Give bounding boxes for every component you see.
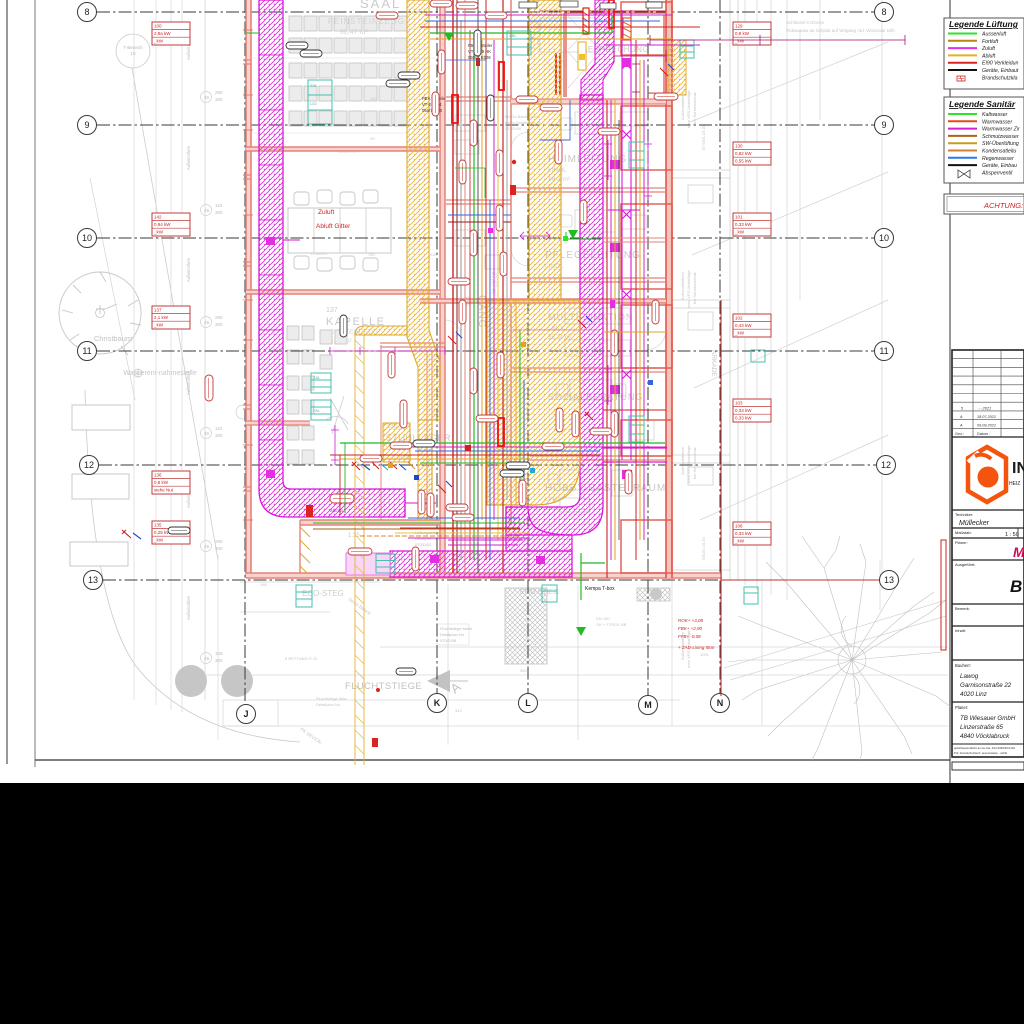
svg-text:siehe Nut: siehe Nut: [154, 488, 174, 493]
svg-text:Geräte, Einbau: Geräte, Einbau: [982, 163, 1017, 169]
svg-text:_kW: _kW: [153, 323, 164, 328]
svg-text:Zuluft: Zuluft: [981, 46, 996, 52]
svg-text:8: 8: [881, 7, 886, 17]
svg-text:_kW: _kW: [734, 230, 745, 235]
svg-text:Bauherr:: Bauherr:: [955, 663, 971, 668]
svg-text:300: 300: [215, 658, 223, 663]
svg-text:Außenvitrikbore: Außenvitrikbore: [680, 446, 685, 475]
svg-text:Detailplan Nu: Detailplan Nu: [316, 702, 340, 707]
svg-text:0,33 kW: 0,33 kW: [735, 408, 752, 413]
svg-text:4840 Vöcklabruck: 4840 Vöcklabruck: [960, 733, 1010, 740]
svg-text:SW-Überlüftung: SW-Überlüftung: [982, 140, 1019, 147]
svg-text:Abluft Gitter: Abluft Gitter: [316, 223, 351, 230]
svg-text:13: 13: [884, 575, 894, 585]
svg-text:J: J: [243, 709, 248, 719]
svg-text:0,33 kW: 0,33 kW: [735, 222, 752, 227]
svg-text:106: 106: [735, 524, 743, 529]
svg-text:M: M: [1013, 544, 1024, 560]
svg-text:142: 142: [154, 215, 162, 220]
svg-text:09.09.2021: 09.09.2021: [977, 424, 996, 428]
svg-text:130: 130: [735, 144, 743, 149]
svg-text:2,8a kW: 2,8a kW: [154, 31, 171, 36]
svg-text:188: 188: [260, 582, 267, 587]
svg-text:11: 11: [879, 346, 888, 356]
svg-text:9: 9: [84, 120, 89, 130]
svg-text:HEIZ: HEIZ: [1009, 481, 1020, 487]
svg-text:Außenvitrikbore: Außenvitrikbore: [680, 271, 685, 300]
svg-text:Zuluft: Zuluft: [318, 209, 334, 216]
svg-text:0,8 kW: 0,8 kW: [735, 31, 750, 36]
svg-text:0,8 kW: 0,8 kW: [154, 480, 169, 485]
svg-text:Regenwasser: Regenwasser: [982, 156, 1014, 162]
svg-text:A: A: [959, 424, 963, 428]
svg-text:Außenrollore: Außenrollore: [186, 370, 191, 395]
svg-text:10: 10: [82, 233, 92, 243]
svg-text:5 RETTUNG-P. Di: 5 RETTUNG-P. Di: [285, 656, 317, 661]
svg-text:101: 101: [735, 215, 743, 220]
svg-text:26: 26: [204, 320, 210, 325]
svg-text:070/D/02: 070/D/02: [415, 542, 432, 547]
svg-text:Legende Lüftung: Legende Lüftung: [949, 19, 1019, 29]
svg-text:Geräte, Einbaut: Geräte, Einbaut: [982, 68, 1019, 74]
svg-text:EI90 Verkleidun: EI90 Verkleidun: [982, 61, 1019, 67]
svg-text:born XPS-Umhellage: born XPS-Umhellage: [686, 445, 691, 483]
svg-text:1 : 50: 1 : 50: [1005, 532, 1019, 538]
svg-text:SSUE-V3.20: SSUE-V3.20: [701, 537, 706, 560]
svg-text:Schmutzwasser: Schmutzwasser: [982, 134, 1019, 140]
svg-text:Außenrollore: Außenrollore: [186, 145, 191, 170]
svg-text:13: 13: [88, 575, 98, 585]
svg-text:100: 100: [154, 24, 162, 29]
svg-text:TB Wiesauer GmbH: TB Wiesauer GmbH: [960, 715, 1016, 722]
svg-text:Linzerstraße 65: Linzerstraße 65: [960, 724, 1004, 731]
svg-text:137: 137: [326, 307, 338, 314]
svg-text:26: 26: [204, 208, 210, 213]
svg-text:Aussenluft: Aussenluft: [981, 32, 1007, 38]
svg-text:Legende Sanitär: Legende Sanitär: [949, 99, 1016, 109]
svg-text:IN: IN: [1012, 460, 1024, 477]
svg-text:290: 290: [215, 315, 223, 320]
svg-text:SAAL: SAAL: [360, 0, 401, 11]
svg-text:FFB+ -0,08: FFB+ -0,08: [678, 634, 701, 639]
svg-text:Kempa T-box: Kempa T-box: [585, 586, 615, 592]
svg-text:T-Bereich: T-Bereich: [123, 45, 143, 50]
svg-text:137: 137: [154, 308, 162, 313]
svg-text:0,94 kW: 0,94 kW: [154, 222, 171, 227]
svg-text:075/D/00: 075/D/00: [505, 126, 522, 131]
svg-text:Christbaum: Christbaum: [94, 334, 132, 343]
svg-text:290: 290: [215, 539, 223, 544]
svg-text:_kW: _kW: [734, 539, 745, 544]
svg-text:300: 300: [215, 433, 223, 438]
svg-text:Techniker:: Techniker:: [955, 512, 973, 517]
svg-text:_kW: _kW: [153, 39, 164, 44]
svg-text:18.07.2021: 18.07.2021: [977, 415, 996, 419]
svg-text:Kaltwasser: Kaltwasser: [982, 112, 1008, 118]
svg-text:290: 290: [215, 90, 223, 95]
svg-text:Maßstab:: Maßstab:: [955, 530, 972, 535]
svg-text:AM/3M: AM/3M: [330, 508, 343, 513]
svg-text:103: 103: [735, 401, 743, 406]
svg-text:0,43 kW: 0,43 kW: [735, 323, 752, 328]
svg-text:300: 300: [215, 97, 223, 102]
svg-text:Schlüssel it Glocke: Schlüssel it Glocke: [786, 20, 825, 25]
svg-text:Fluchtstiege siehe: Fluchtstiege siehe: [440, 626, 473, 631]
svg-text:Garnisonstraße 22: Garnisonstraße 22: [960, 682, 1012, 689]
svg-text:Absperrventil: Absperrventil: [981, 170, 1013, 176]
svg-text:BESPRECHUNG: BESPRECHUNG: [582, 45, 649, 54]
svg-text:bei Sonnenschutz: bei Sonnenschutz: [692, 272, 697, 304]
svg-text:960: 960: [520, 668, 527, 673]
svg-text:OK + FTRCK UB: OK + FTRCK UB: [596, 622, 627, 627]
svg-text:12: 12: [84, 460, 94, 470]
svg-text:070/D/08: 070/D/08: [440, 638, 457, 643]
svg-text:_kW: _kW: [153, 538, 164, 543]
svg-text:N: N: [717, 698, 724, 708]
svg-text:geböftsausmäbcht an ws./wa. 4/: geböftsausmäbcht an ws./wa. 4/11/1953/49…: [954, 746, 1015, 750]
svg-text:2,1 kW: 2,1 kW: [154, 315, 169, 320]
svg-text:ETSSE-V3.20: ETSSE-V3.20: [701, 124, 706, 150]
svg-text:300: 300: [215, 546, 223, 551]
svg-text:300: 300: [215, 210, 223, 215]
svg-text:Gez.:: Gez.:: [955, 432, 964, 436]
svg-text:K: K: [434, 698, 441, 708]
svg-text:M: M: [644, 700, 652, 710]
svg-text:Ausgeführt:: Ausgeführt:: [955, 562, 975, 567]
svg-text:12: 12: [881, 460, 891, 470]
svg-text:26: 26: [204, 431, 210, 436]
svg-text:_kW: _kW: [734, 39, 745, 44]
svg-text:Brandschutzkla: Brandschutzkla: [982, 75, 1018, 81]
svg-text:0,33 kW: 0,33 kW: [735, 416, 752, 421]
svg-text:Lawog: Lawog: [960, 673, 979, 680]
svg-text:29: 29: [370, 136, 375, 141]
svg-text:27,87 m²: 27,87 m²: [490, 272, 496, 296]
svg-text:136: 136: [154, 473, 162, 478]
svg-text:Außenvitrikbore: Außenvitrikbore: [680, 91, 685, 120]
svg-text:ARKADE: ARKADE: [710, 350, 717, 377]
svg-text:0,33 kW: 0,33 kW: [735, 531, 752, 536]
svg-text:9: 9: [881, 120, 886, 130]
svg-text:Bemerk:: Bemerk:: [955, 606, 970, 611]
svg-text:98,47 m²: 98,47 m²: [340, 29, 368, 36]
svg-text:8: 8: [84, 7, 89, 17]
svg-text:26: 26: [204, 656, 210, 661]
svg-text:110: 110: [215, 203, 223, 208]
svg-text:FAL: FAL: [313, 408, 321, 413]
svg-text:ZAL: ZAL: [310, 83, 318, 88]
svg-text:26: 26: [204, 544, 210, 549]
svg-text:Pof: brandschutztech. ausums: Pof: brandschutztech. ausumstatue - acht…: [954, 751, 1008, 755]
svg-text:Warmwasser Zir: Warmwasser Zir: [982, 127, 1020, 133]
svg-text:Rükaustaw aa Schjukt auf Wögan: Rükaustaw aa Schjukt auf Wögang rüd. Wis…: [786, 28, 895, 33]
svg-text:1001: 1001: [700, 652, 710, 657]
svg-text:102: 102: [735, 316, 743, 321]
svg-text:129: 129: [735, 24, 743, 29]
svg-text:10: 10: [879, 233, 889, 243]
svg-text:Fortluft: Fortluft: [982, 39, 999, 45]
svg-text:Detailplan Nu: Detailplan Nu: [440, 632, 464, 637]
svg-text:Fluchtstiege deta: Fluchtstiege deta: [316, 696, 347, 701]
svg-text:Planer:: Planer:: [955, 705, 968, 710]
svg-text:L: L: [525, 698, 531, 708]
svg-text:740: 740: [368, 252, 375, 257]
svg-text:ROK+ +3,08: ROK+ +3,08: [678, 618, 704, 623]
svg-text:ACHTUNG: A: ACHTUNG: A: [983, 201, 1024, 210]
svg-text:B: B: [1010, 577, 1022, 596]
svg-text:born XPS-Umhellage: born XPS-Umhellage: [686, 270, 691, 308]
svg-text:0,55 kW: 0,55 kW: [735, 159, 752, 164]
svg-text:DN 100: DN 100: [596, 616, 610, 621]
svg-text:FBK+ +2,90: FBK+ +2,90: [678, 626, 703, 631]
svg-text:Kondensatleitu: Kondensatleitu: [982, 149, 1016, 155]
svg-text:26: 26: [204, 95, 210, 100]
svg-text:0,82 kW: 0,82 kW: [735, 151, 752, 156]
svg-text:Datum :: Datum :: [977, 432, 990, 436]
svg-text:135: 135: [154, 523, 162, 528]
svg-text:_kW: _kW: [153, 230, 164, 235]
svg-text:4020 Linz: 4020 Linz: [960, 691, 988, 698]
svg-text:ECO-STEG: ECO-STEG: [302, 589, 344, 598]
svg-text:ABL: ABL: [509, 33, 517, 38]
svg-text:L02: L02: [310, 101, 317, 106]
svg-text:Außenrollore: Außenrollore: [186, 595, 191, 620]
svg-text:-.-.2021: -.-.2021: [978, 407, 991, 411]
svg-text:_kW: _kW: [734, 331, 745, 336]
svg-text:110: 110: [370, 96, 377, 101]
svg-text:19: 19: [130, 51, 136, 56]
svg-text:.: .: [660, 0, 661, 1]
svg-text:Außenrollore: Außenrollore: [186, 257, 191, 282]
svg-text:ZAL: ZAL: [313, 375, 321, 380]
svg-text:Warmwasser: Warmwasser: [982, 119, 1012, 125]
svg-text:Plannr:: Plannr:: [955, 540, 968, 545]
svg-text:11: 11: [82, 346, 91, 356]
svg-text:105: 105: [215, 651, 223, 656]
svg-text:Müllecker: Müllecker: [959, 520, 990, 527]
svg-text:110: 110: [215, 426, 223, 431]
svg-text:A: A: [959, 415, 963, 419]
svg-text:+ ZAD-Lining 5ton: + ZAD-Lining 5ton: [678, 645, 715, 650]
svg-text:342: 342: [455, 708, 462, 713]
svg-text:300: 300: [215, 322, 223, 327]
svg-text:Abluft: Abluft: [981, 53, 996, 59]
svg-text:Inhalt:: Inhalt:: [955, 628, 966, 633]
